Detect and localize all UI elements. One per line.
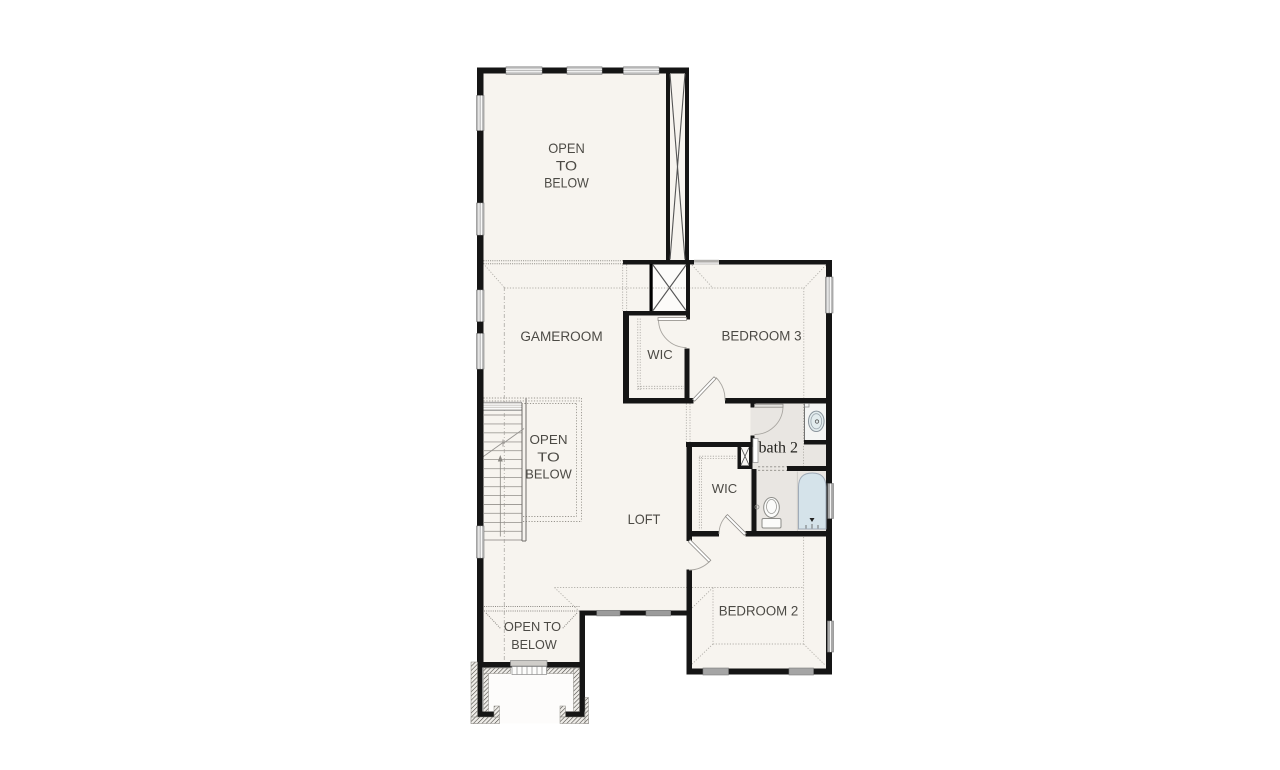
svg-text:BELOW: BELOW xyxy=(511,637,557,652)
svg-text:TO: TO xyxy=(537,449,560,464)
svg-text:GAMEROOM: GAMEROOM xyxy=(520,329,602,345)
svg-text:LOFT: LOFT xyxy=(628,512,661,527)
svg-text:BEDROOM 2: BEDROOM 2 xyxy=(719,604,799,620)
svg-text:BELOW: BELOW xyxy=(544,176,589,191)
svg-text:bath 2: bath 2 xyxy=(759,440,799,457)
svg-text:OPEN: OPEN xyxy=(548,141,585,156)
svg-text:BEDROOM 3: BEDROOM 3 xyxy=(722,329,802,345)
svg-text:WIC: WIC xyxy=(647,347,672,362)
svg-text:WIC: WIC xyxy=(712,481,737,496)
svg-text:BELOW: BELOW xyxy=(525,467,572,482)
svg-text:TO: TO xyxy=(556,159,577,174)
svg-text:OPEN TO: OPEN TO xyxy=(504,619,561,634)
svg-text:OPEN: OPEN xyxy=(530,432,568,447)
